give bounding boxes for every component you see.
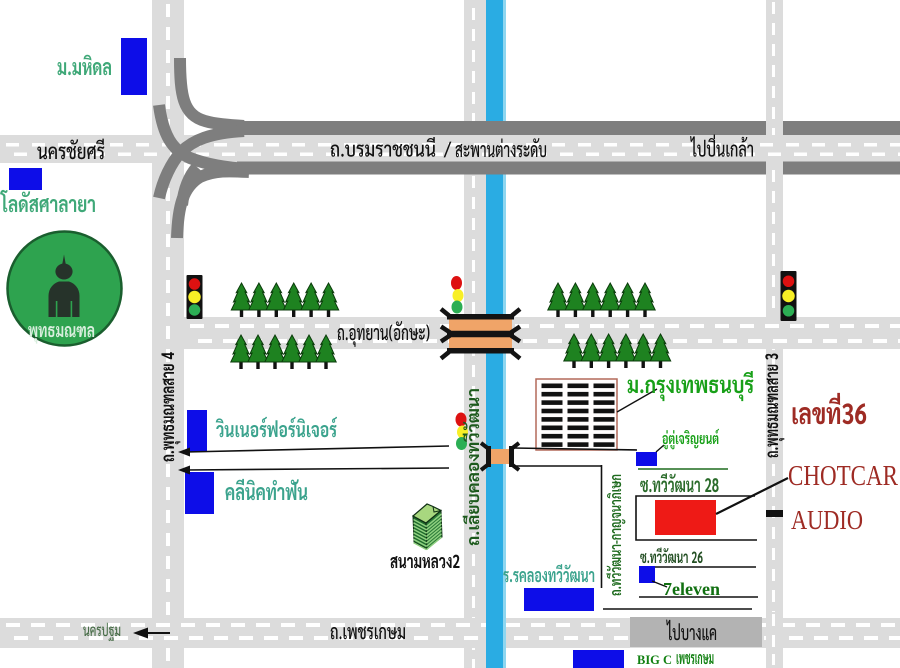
- svg-text:AUDIO: AUDIO: [791, 505, 863, 535]
- svg-text:CHOTCAR: CHOTCAR: [788, 460, 899, 492]
- svg-text:7eleven: 7eleven: [663, 579, 720, 599]
- svg-text:BIG C: BIG C: [637, 652, 672, 667]
